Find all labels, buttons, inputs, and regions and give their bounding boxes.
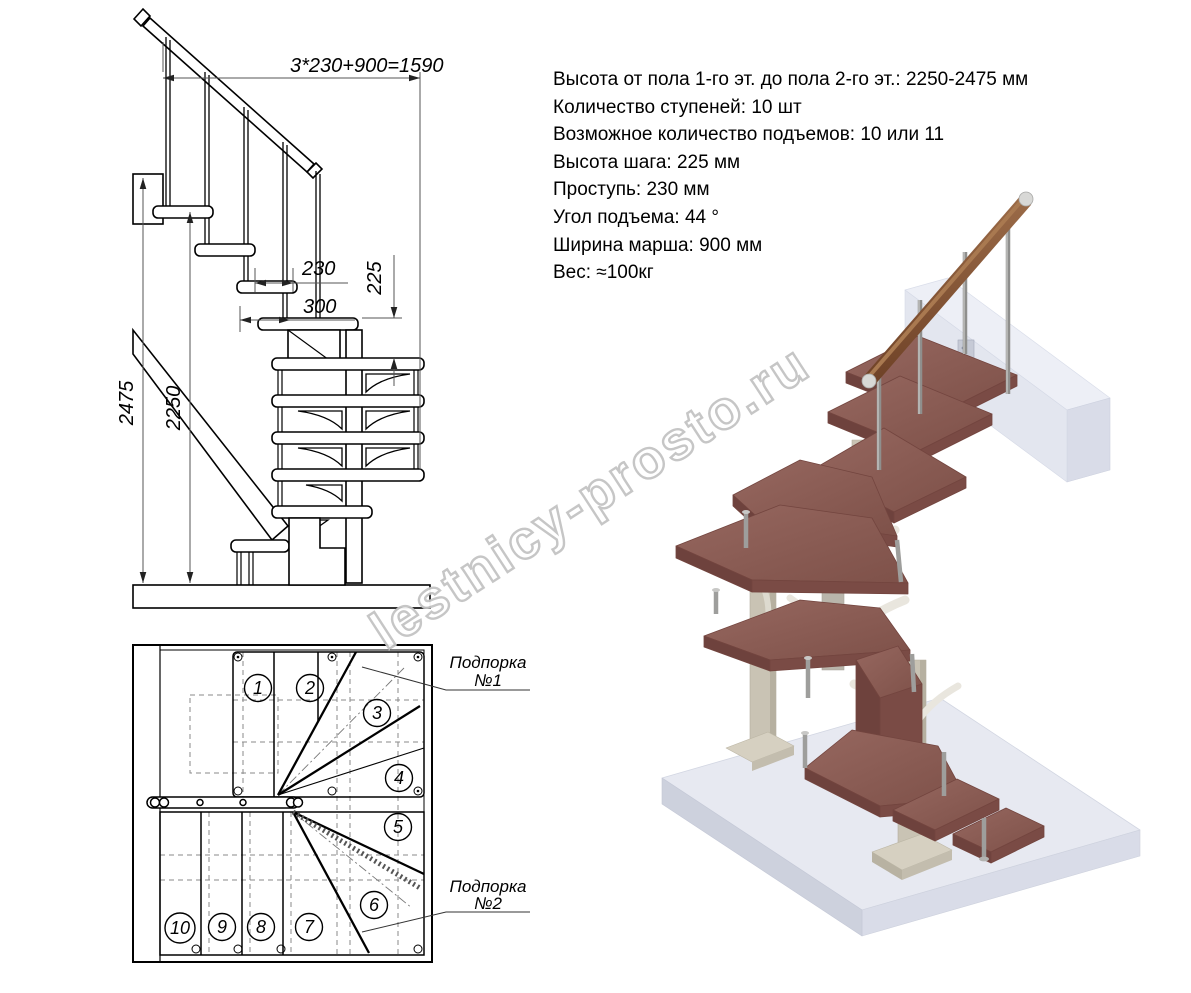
render-3d (662, 192, 1140, 936)
plan-handrail-bar (147, 797, 303, 808)
drawings-svg: 3*230+900=1590 230 300 225 2475 2250 (0, 0, 1191, 993)
step-label-9: 9 (217, 917, 227, 937)
step-label-1: 1 (253, 678, 263, 698)
step-label-8: 8 (256, 917, 266, 937)
staircase-spec-sheet: Высота от пола 1-го эт. до пола 2-го эт.… (0, 0, 1191, 993)
plan-drawing: 1 2 3 4 5 6 7 8 9 10 Подпорка №1 (133, 645, 530, 962)
step-label-7: 7 (304, 917, 315, 937)
support1-title: Подпорка (450, 653, 527, 672)
dim-floor-height: 2250 (163, 386, 185, 432)
step-label-4: 4 (394, 768, 404, 788)
dim-full-height: 2475 (116, 380, 138, 426)
dim-landing-depth: 300 (303, 296, 336, 318)
support2-number: №2 (474, 894, 502, 913)
step-label-3: 3 (372, 703, 382, 723)
step-label-5: 5 (393, 817, 404, 837)
elev-bottom-step (231, 518, 345, 585)
step-label-2: 2 (304, 678, 315, 698)
elev-stringer (133, 330, 288, 540)
step-label-6: 6 (369, 895, 380, 915)
support1-number: №1 (474, 671, 502, 690)
dim-tread-depth: 230 (301, 258, 335, 280)
elevation-drawing: 3*230+900=1590 230 300 225 2475 2250 (116, 9, 444, 608)
elev-balusters (166, 37, 320, 358)
handrail-top-cap (1019, 192, 1033, 206)
elev-handrail (134, 9, 322, 178)
handrail-end-cap (862, 374, 876, 388)
dim-rise: 225 (364, 260, 386, 295)
step-label-10: 10 (170, 918, 190, 938)
dim-total-run: 3*230+900=1590 (290, 55, 444, 77)
bottom-flight-outline (160, 812, 424, 955)
